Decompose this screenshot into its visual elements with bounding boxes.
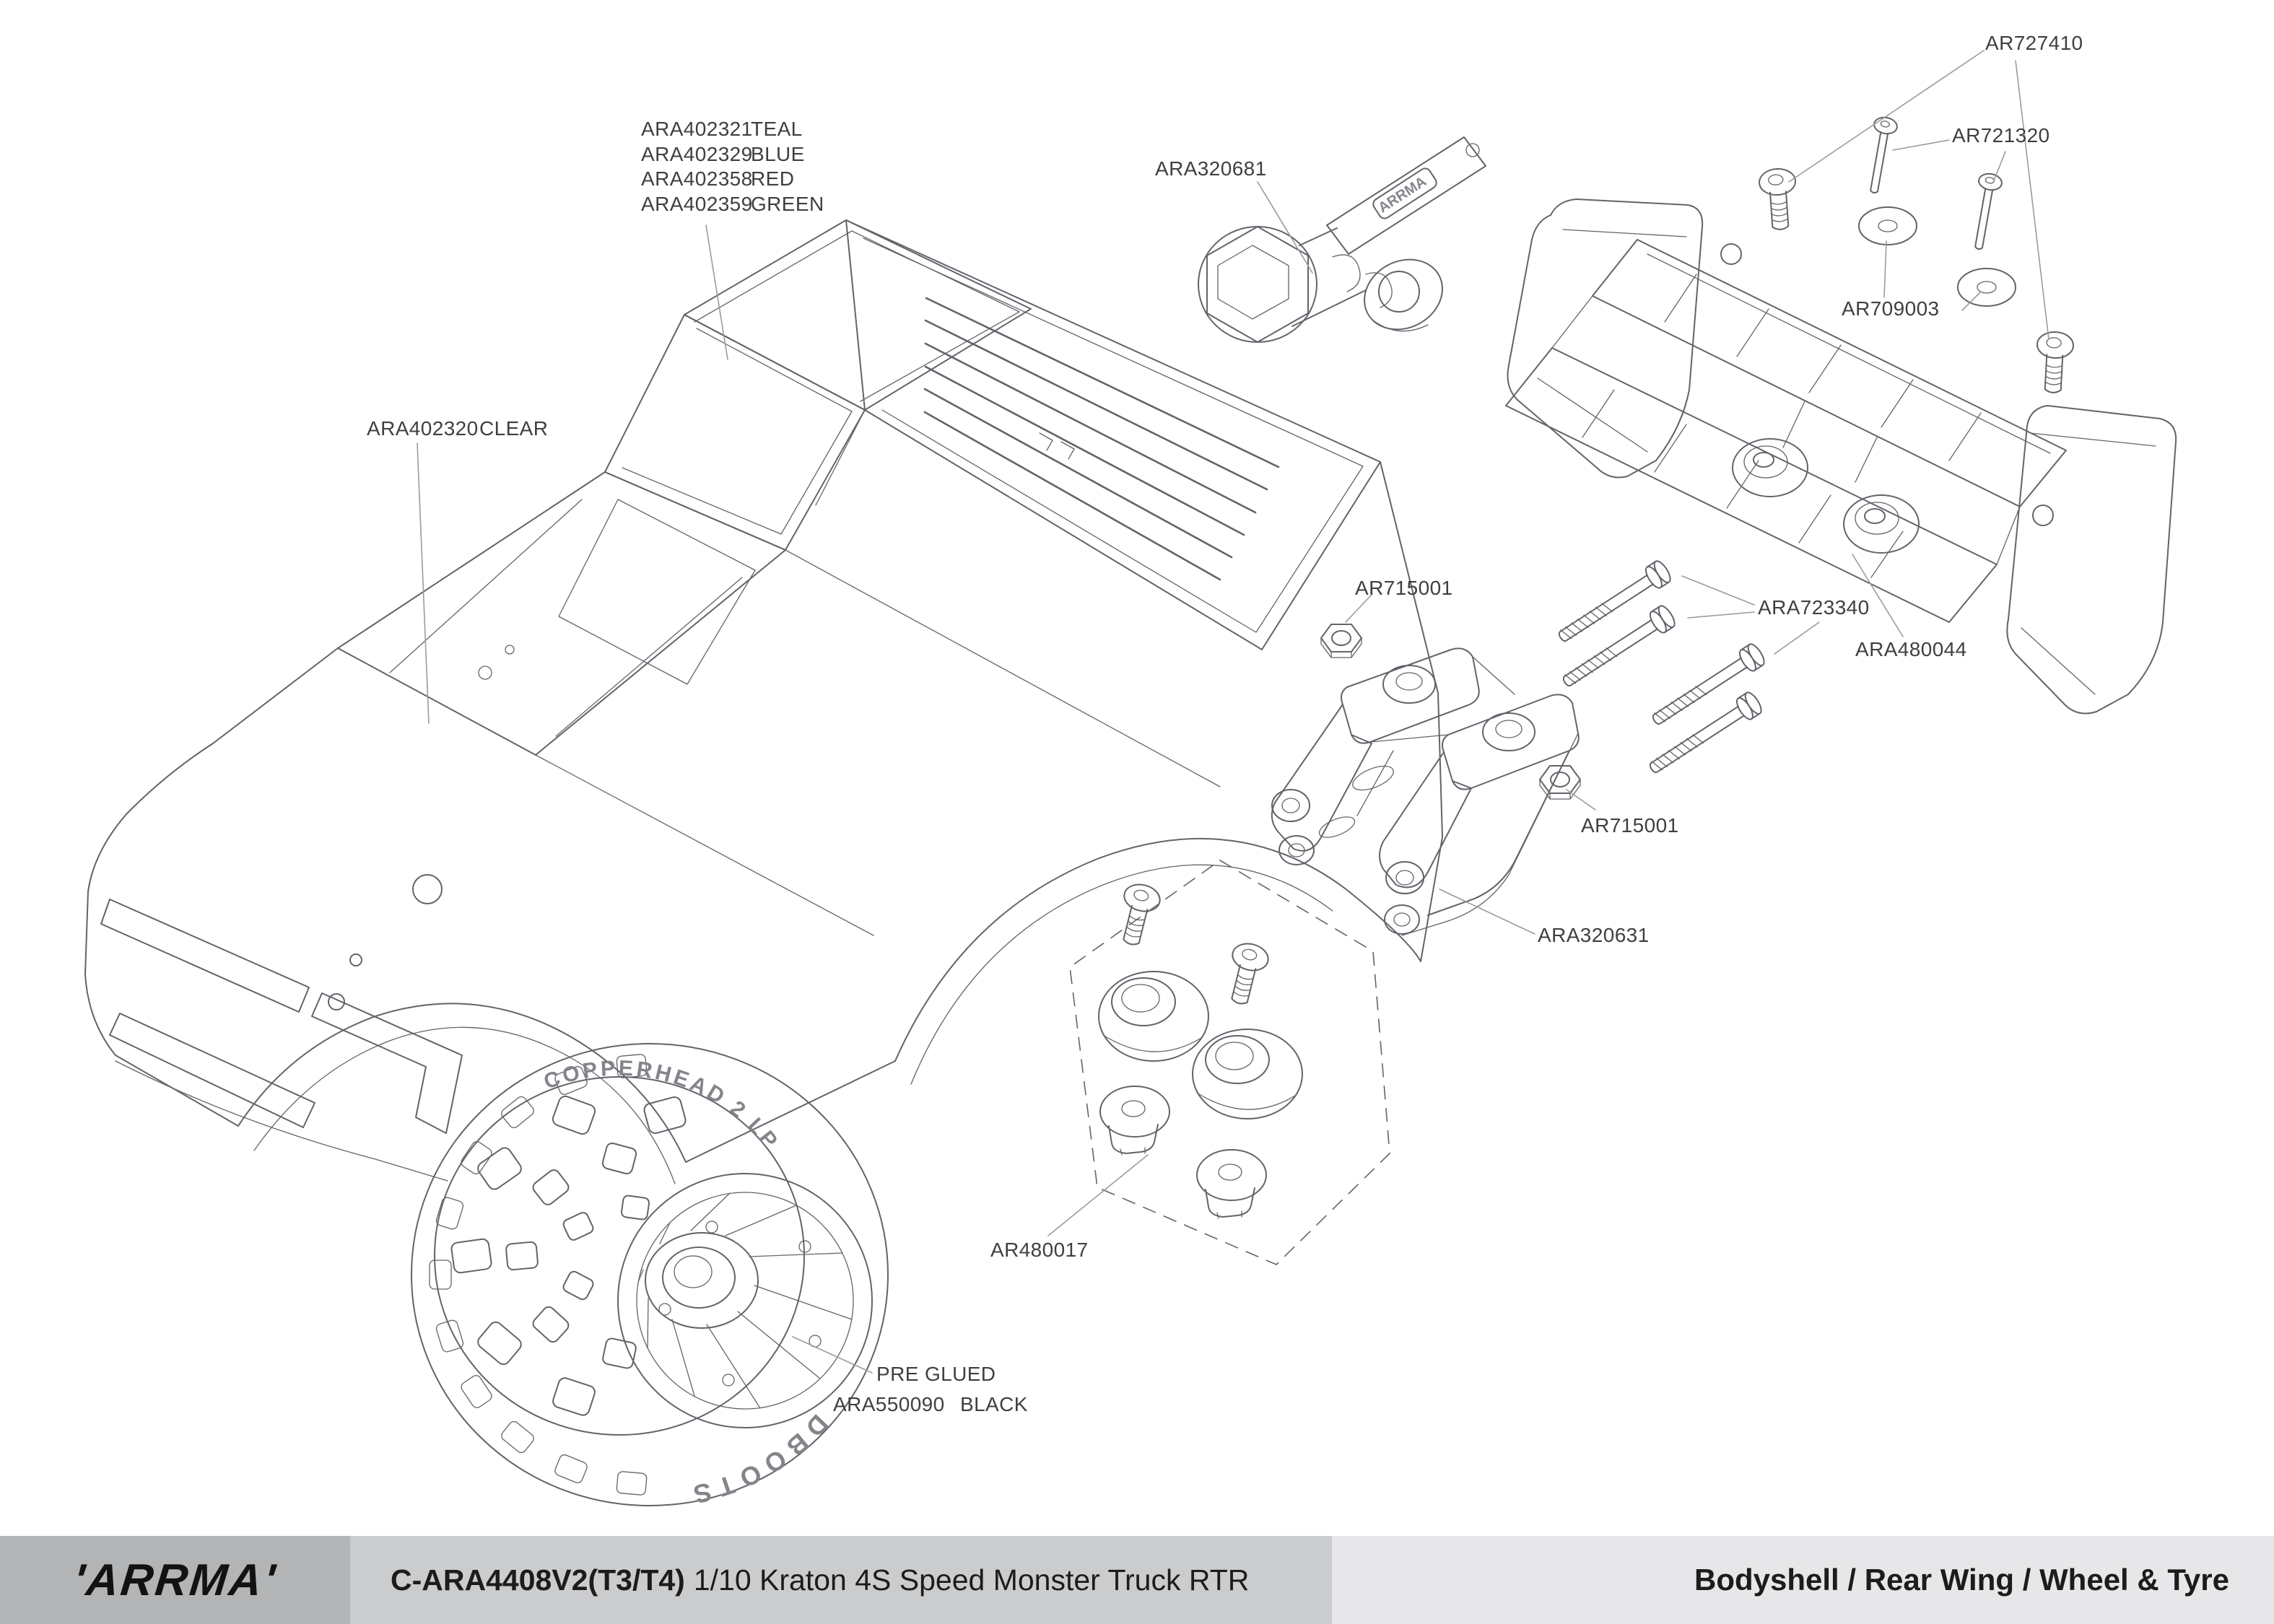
svg-text:DBOOTS: DBOOTS [684,1409,834,1511]
label-tool: ARA320681 [1155,157,1267,180]
label-nut-rear: AR715001 [1581,814,1679,837]
rear-wing-drawing [1506,199,2176,713]
label-wing-button-screws: AR727410 [1985,32,2083,55]
section-title: Bodyshell / Rear Wing / Wheel & Tyre [1694,1563,2229,1597]
document-title-bar: C-ARA4408V2(T3/T4) 1/10 Kraton 4S Speed … [350,1536,1332,1624]
label-wing-mount: ARA320631 [1538,924,1650,947]
wing-mount-drawing [1272,648,1579,935]
exploded-parts-drawing: ARRMA [0,0,2274,1624]
label-rear-wing: ARA480044 [1855,638,1967,661]
arrma-logo: 'ARRMA' [71,1555,279,1606]
label-bodyshell-clear: ARA402320CLEAR [367,417,548,440]
hex-nut-front-drawing [1321,624,1362,658]
document-title: 1/10 Kraton 4S Speed Monster Truck RTR [694,1563,1250,1597]
label-body-mount-set: AR480017 [990,1239,1089,1262]
label-row: ARA402321TEAL [641,117,824,142]
section-title-bar: Bodyshell / Rear Wing / Wheel & Tyre [1332,1536,2274,1624]
document-code: C-ARA4408V2(T3/T4) [391,1563,685,1597]
label-wing-pins: AR721320 [1952,124,2050,147]
brand-logo-block: 'ARRMA' [0,1536,350,1624]
label-row: ARA402329BLUE [641,142,824,167]
label-bodyshell-color-options: ARA402321TEAL ARA402329BLUE ARA402358RED… [641,117,824,217]
body-mount-set-drawing [1070,860,1390,1265]
wheel-tyre-drawing: COPPERHEAD 2 LP DBOOTS [411,1044,888,1511]
parts-diagram-page: ARRMA [0,0,2274,1624]
label-row: ARA402359GREEN [641,192,824,217]
truck-bodyshell-drawing [85,220,1442,1184]
label-nut-front: AR715001 [1355,577,1453,600]
leader-lines [417,51,2049,1373]
tyre-model-marking: COPPERHEAD 2 LP [541,1057,783,1155]
wing-mount-screws-drawing [1554,559,1767,780]
svg-text:COPPERHEAD 2 LP: COPPERHEAD 2 LP [541,1057,783,1155]
label-wheel-tyre: ARA550090BLACK [833,1393,1028,1416]
label-wing-mount-screws: ARA723340 [1758,596,1870,619]
label-tyre-note: PRE GLUED [876,1363,996,1386]
footer-bar: 'ARRMA' C-ARA4408V2(T3/T4) 1/10 Kraton 4… [0,1536,2274,1624]
label-row: ARA402358RED [641,167,824,192]
label-wing-washers: AR709003 [1842,297,1940,320]
tyre-brand-marking: DBOOTS [684,1409,834,1511]
